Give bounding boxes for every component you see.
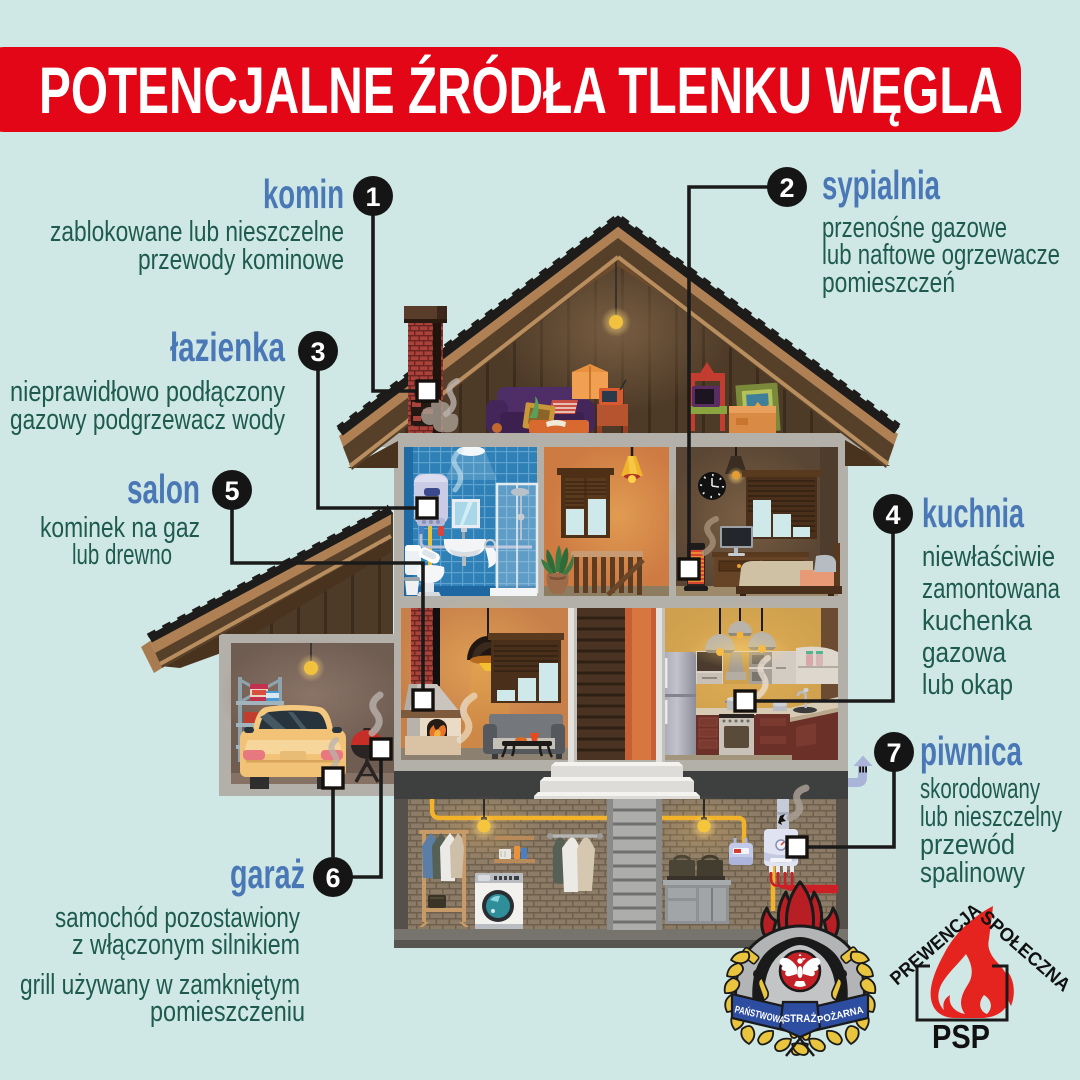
svg-text:6: 6 xyxy=(325,863,340,893)
svg-text:4: 4 xyxy=(885,500,900,530)
svg-text:pomieszczeniu: pomieszczeniu xyxy=(150,996,305,1028)
svg-text:STRAŻ: STRAŻ xyxy=(784,1012,817,1025)
svg-text:przewody kominowe: przewody kominowe xyxy=(138,244,344,276)
svg-text:zamontowana: zamontowana xyxy=(922,573,1061,605)
svg-text:kuchenka: kuchenka xyxy=(922,605,1033,637)
svg-text:piwnica: piwnica xyxy=(920,728,1023,774)
svg-text:7: 7 xyxy=(886,738,901,768)
svg-text:lub drewno: lub drewno xyxy=(72,539,172,571)
svg-text:kuchnia: kuchnia xyxy=(922,490,1025,536)
svg-text:5: 5 xyxy=(224,476,239,506)
svg-text:łazienka: łazienka xyxy=(170,324,286,370)
svg-text:komin: komin xyxy=(263,171,344,217)
svg-text:niewłaściwie: niewłaściwie xyxy=(922,541,1055,573)
svg-text:1: 1 xyxy=(365,182,380,212)
svg-text:gazowy podgrzewacz wody: gazowy podgrzewacz wody xyxy=(10,404,285,436)
svg-text:2: 2 xyxy=(779,173,794,203)
svg-text:gazowa: gazowa xyxy=(922,637,1007,669)
svg-text:PSP: PSP xyxy=(932,1018,990,1055)
svg-text:POTENCJALNE ŹRÓDŁA TLENKU WĘGL: POTENCJALNE ŹRÓDŁA TLENKU WĘGLA xyxy=(39,53,1003,127)
svg-text:lub okap: lub okap xyxy=(922,669,1013,701)
svg-text:garaż: garaż xyxy=(230,851,305,897)
svg-text:pomieszczeń: pomieszczeń xyxy=(822,267,955,299)
svg-text:3: 3 xyxy=(310,337,325,367)
svg-text:sypialnia: sypialnia xyxy=(822,162,941,208)
svg-text:salon: salon xyxy=(127,466,200,512)
svg-text:spalinowy: spalinowy xyxy=(920,857,1025,889)
svg-text:z włączonym silnikiem: z włączonym silnikiem xyxy=(72,929,300,961)
